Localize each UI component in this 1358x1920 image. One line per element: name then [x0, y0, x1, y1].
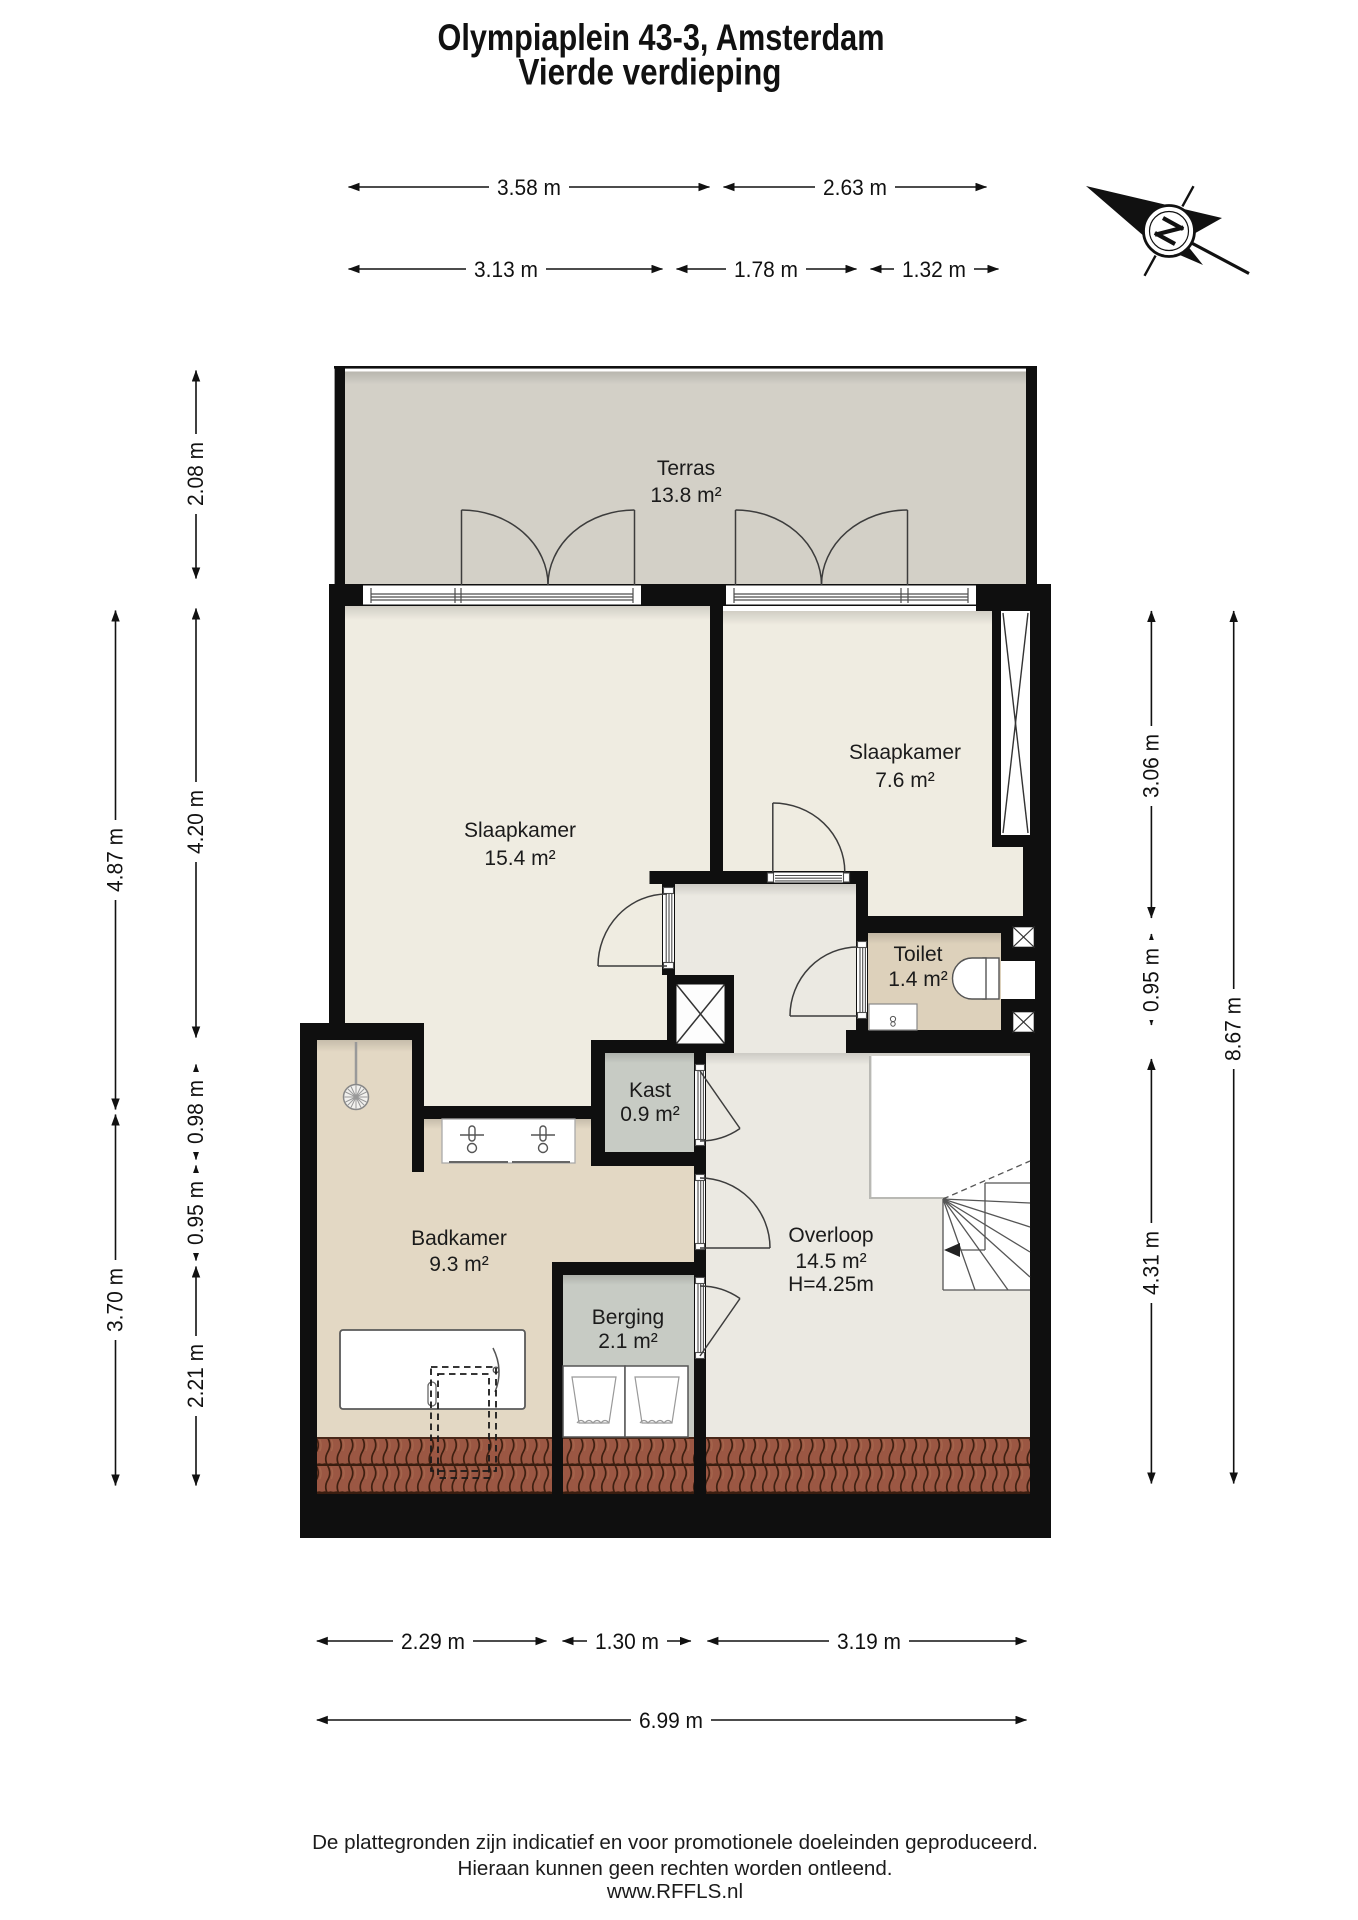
svg-text:Overloop: Overloop — [788, 1224, 873, 1247]
svg-text:0.9 m²: 0.9 m² — [620, 1103, 680, 1126]
svg-text:Slaapkamer: Slaapkamer — [849, 741, 961, 764]
svg-text:Slaapkamer: Slaapkamer — [464, 819, 576, 842]
svg-text:H=4.25m: H=4.25m — [788, 1273, 874, 1296]
svg-text:3.19 m: 3.19 m — [837, 1629, 901, 1654]
svg-text:2.1 m²: 2.1 m² — [598, 1330, 658, 1353]
svg-text:Badkamer: Badkamer — [411, 1227, 507, 1250]
svg-text:Berging: Berging — [592, 1306, 664, 1329]
svg-text:6.99 m: 6.99 m — [639, 1708, 703, 1733]
svg-text:0.98 m: 0.98 m — [183, 1080, 208, 1144]
svg-text:Terras: Terras — [657, 457, 715, 480]
svg-text:1.32 m: 1.32 m — [902, 257, 966, 282]
svg-text:www.RFFLS.nl: www.RFFLS.nl — [606, 1880, 743, 1903]
svg-text:De plattegronden zijn indicati: De plattegronden zijn indicatief en voor… — [312, 1831, 1038, 1854]
svg-text:0.95 m: 0.95 m — [1138, 948, 1163, 1012]
svg-text:4.31 m: 4.31 m — [1138, 1231, 1163, 1295]
svg-text:4.20 m: 4.20 m — [183, 790, 208, 854]
svg-text:8.67 m: 8.67 m — [1221, 997, 1246, 1061]
svg-text:13.8 m²: 13.8 m² — [650, 484, 721, 507]
svg-text:1.78 m: 1.78 m — [734, 257, 798, 282]
svg-text:Toilet: Toilet — [893, 943, 942, 966]
svg-text:2.63 m: 2.63 m — [823, 175, 887, 200]
svg-text:2.08 m: 2.08 m — [183, 442, 208, 506]
svg-text:0.95 m: 0.95 m — [183, 1181, 208, 1245]
svg-text:3.70 m: 3.70 m — [103, 1268, 128, 1332]
svg-text:Vierde verdieping: Vierde verdieping — [519, 52, 782, 93]
svg-text:3.06 m: 3.06 m — [1138, 734, 1163, 798]
svg-text:1.30 m: 1.30 m — [595, 1629, 659, 1654]
svg-text:4.87 m: 4.87 m — [103, 828, 128, 892]
svg-text:2.29 m: 2.29 m — [401, 1629, 465, 1654]
svg-text:2.21 m: 2.21 m — [183, 1344, 208, 1408]
svg-text:1.4 m²: 1.4 m² — [888, 968, 948, 991]
svg-text:14.5 m²: 14.5 m² — [795, 1250, 866, 1273]
svg-text:15.4 m²: 15.4 m² — [484, 847, 555, 870]
svg-text:3.13 m: 3.13 m — [474, 257, 538, 282]
svg-text:7.6 m²: 7.6 m² — [875, 769, 935, 792]
svg-text:9.3 m²: 9.3 m² — [429, 1253, 489, 1276]
svg-text:Hieraan kunnen geen rechten wo: Hieraan kunnen geen rechten worden ontle… — [457, 1857, 892, 1880]
svg-text:3.58 m: 3.58 m — [497, 175, 561, 200]
svg-text:Kast: Kast — [629, 1079, 671, 1102]
